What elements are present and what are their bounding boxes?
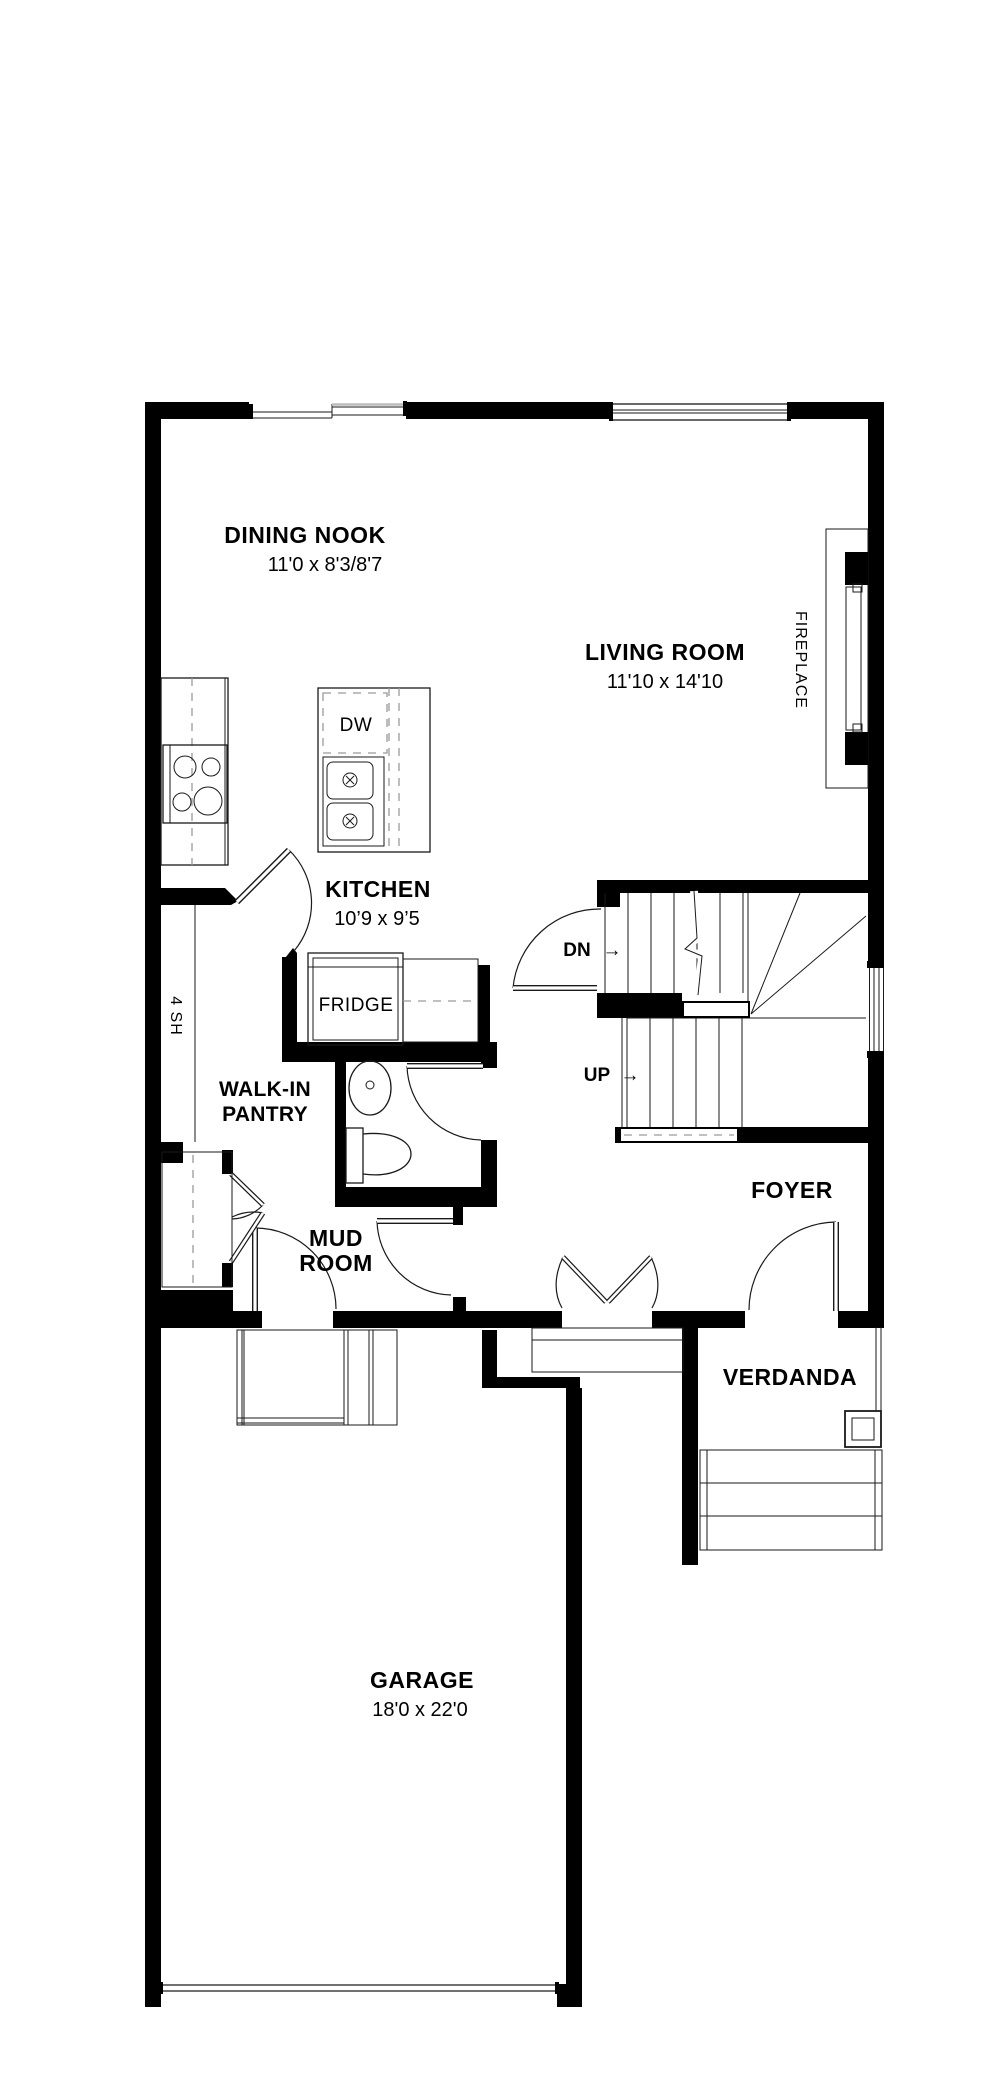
door-leaf-inner: [563, 1257, 606, 1302]
door-arc: [651, 1257, 658, 1308]
firebox: [846, 587, 861, 730]
door-arc: [289, 850, 312, 951]
room-dims-living-room: 11'10 x 14'10: [607, 671, 723, 693]
hall-closet: [532, 1328, 683, 1372]
step-lines: [237, 1330, 373, 1425]
garage-door-lines: [161, 1985, 557, 1991]
room-dims-garage: 18'0 x 22'0: [372, 1699, 468, 1721]
bathroom-door: [407, 1066, 483, 1140]
bath-sink-drain: [366, 1081, 374, 1089]
stair-treads-down: [605, 893, 748, 1002]
burner-icon: [194, 787, 222, 815]
floor-plan: DINING NOOK 11'0 x 8'3/8'7 LIVING ROOM 1…: [0, 0, 1000, 2100]
stairwell-window: [866, 961, 886, 1058]
porch-edge: [876, 1327, 881, 1411]
mudroom-closet-doors: [231, 1174, 263, 1262]
verdanda-steps: [700, 1450, 882, 1550]
stair-up-arrow-icon: →: [621, 1065, 640, 1086]
verdanda-porch: [700, 1327, 882, 1550]
exterior-walls: [145, 402, 884, 2007]
porch-post: [845, 1411, 881, 1447]
feature-label-fireplace: FIREPLACE: [792, 611, 809, 709]
dining-window: [249, 401, 407, 419]
burner-icon: [202, 758, 220, 776]
room-label-mud-room-1: MUD: [309, 1225, 363, 1251]
living-room-window: [609, 402, 791, 421]
stair-treads-up: [622, 1018, 742, 1127]
door-leaf-inner: [608, 1257, 651, 1302]
room-label-mud-room-2: ROOM: [299, 1250, 373, 1276]
closet-outline: [532, 1328, 683, 1372]
verdanda-step-lines: [700, 1450, 882, 1550]
feature-label-dishwasher: DW: [340, 715, 373, 736]
room-label-dining-nook: DINING NOOK: [224, 522, 385, 548]
burner-icon: [173, 793, 191, 811]
closet-outline: [162, 1152, 232, 1287]
room-dims-kitchen: 10’9 x 9’5: [334, 908, 420, 930]
hall-closet-doors: [556, 1257, 658, 1308]
kitchen-island: [318, 688, 430, 852]
garage-steps: [237, 1330, 397, 1425]
room-label-garage: GARAGE: [370, 1667, 474, 1693]
door-leaf-inner: [237, 850, 289, 902]
garage-door-caps: [159, 1982, 559, 1994]
room-dims-dining-nook: 11'0 x 8'3/8'7: [268, 554, 383, 576]
front-door: [749, 1222, 836, 1311]
faucet-icon: [343, 773, 357, 828]
stair-label-up: UP: [584, 1065, 611, 1086]
stair-label-down: DN: [563, 940, 590, 961]
door-leaf-inner: [231, 1213, 263, 1262]
door-arc: [749, 1222, 836, 1310]
burner-icon: [174, 756, 196, 778]
door-arc: [556, 1257, 563, 1308]
bathroom-fixtures: [346, 1061, 411, 1183]
room-label-foyer: FOYER: [751, 1177, 833, 1203]
labels: DINING NOOK 11'0 x 8'3/8'7 LIVING ROOM 1…: [167, 522, 857, 1721]
pantry-door: [237, 850, 312, 951]
stair-landing-tread: [683, 1002, 749, 1017]
toilet-tank: [346, 1128, 363, 1183]
room-label-walk-in-pantry-2: PANTRY: [222, 1103, 308, 1126]
sink-unit: [323, 757, 384, 846]
door-arc: [407, 1066, 481, 1140]
fireplace: [826, 529, 868, 788]
room-label-walk-in-pantry-1: WALK-IN: [219, 1078, 311, 1101]
mudroom-closet: [162, 1152, 232, 1287]
feature-label-pantry-shelves: 4 SH: [167, 996, 184, 1036]
toilet-bowl: [363, 1133, 411, 1174]
stair-down-arrow-icon: →: [603, 940, 622, 961]
room-label-living-room: LIVING ROOM: [585, 639, 745, 665]
room-label-kitchen: KITCHEN: [325, 876, 431, 902]
bath-sink: [349, 1061, 391, 1115]
floor-plan-canvas: DINING NOOK 11'0 x 8'3/8'7 LIVING ROOM 1…: [0, 0, 1000, 2100]
door-arc: [377, 1221, 451, 1295]
garage-door: [159, 1982, 559, 1994]
room-label-verdanda: VERDANDA: [723, 1364, 857, 1390]
feature-label-fridge: FRIDGE: [319, 995, 394, 1016]
door-leaf-inner: [231, 1174, 263, 1205]
mudroom-door: [377, 1221, 453, 1295]
